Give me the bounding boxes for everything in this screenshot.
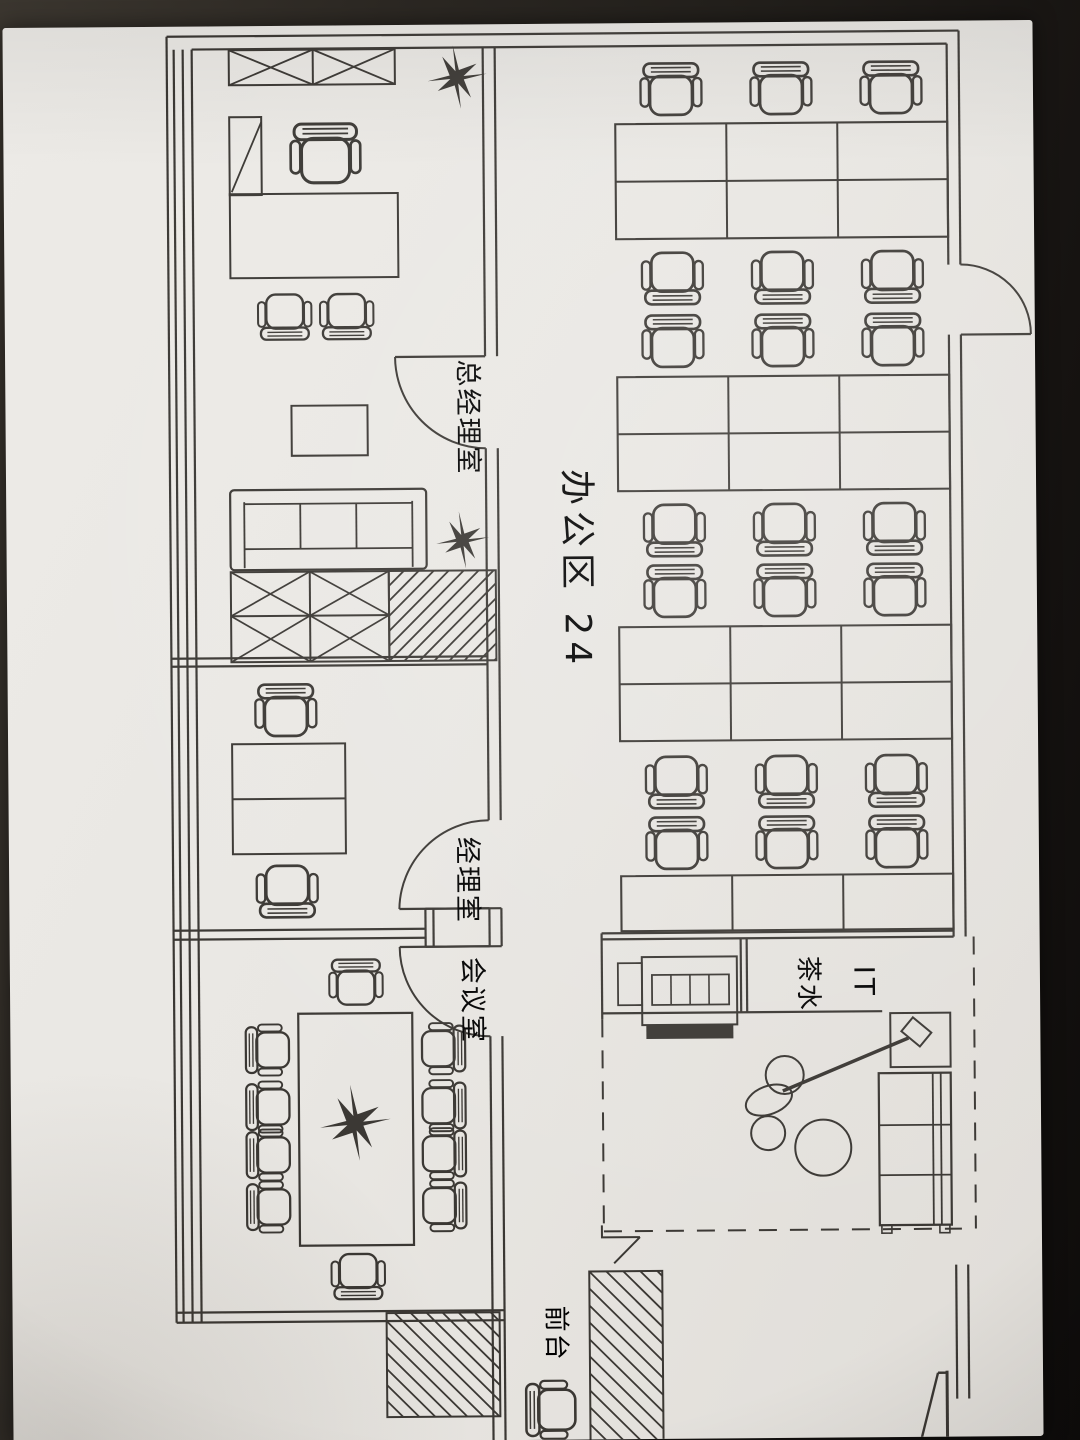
chair bbox=[320, 294, 374, 339]
chair-arm bbox=[750, 77, 759, 105]
wall-line bbox=[747, 938, 748, 1012]
desk-bank bbox=[621, 874, 953, 932]
sofa-seat-edge bbox=[245, 548, 413, 549]
chair-arm bbox=[540, 1381, 567, 1389]
chair-seat bbox=[874, 576, 916, 615]
chair-arm bbox=[695, 330, 704, 358]
label-meeting-room: 会议室 bbox=[456, 957, 488, 1044]
chair-arm bbox=[809, 831, 818, 859]
chair-arm bbox=[429, 1067, 453, 1074]
floor-plan-svg: 总经理室 经理室 会议室 办公区 24 茶水 IT 前台 bbox=[2, 20, 1043, 1440]
jamb-mark bbox=[921, 1373, 939, 1439]
chair bbox=[642, 315, 703, 367]
desk-divider bbox=[616, 179, 948, 182]
wall-line bbox=[174, 929, 426, 931]
column-meeting-hatch-line bbox=[395, 1312, 500, 1417]
chair-seat bbox=[655, 757, 697, 796]
column-gm-hatch-line bbox=[389, 570, 465, 646]
chair bbox=[646, 757, 707, 809]
chair-arm bbox=[805, 329, 814, 357]
chair-arm bbox=[804, 260, 813, 288]
executive-desk bbox=[230, 193, 399, 278]
chair-arm bbox=[258, 302, 266, 327]
chair-arm bbox=[756, 764, 765, 792]
wall-line bbox=[483, 47, 485, 356]
pantry-boundary-dashed bbox=[604, 1229, 962, 1232]
column-meeting-hatch-line bbox=[475, 1312, 500, 1337]
chair-arm bbox=[646, 765, 655, 793]
reception-wall-hatch-line bbox=[590, 1407, 624, 1440]
chair bbox=[754, 564, 815, 616]
chair-seat bbox=[266, 866, 308, 905]
chair-arm bbox=[916, 511, 925, 539]
sofa-arm bbox=[244, 502, 245, 568]
chair-seat bbox=[423, 1136, 456, 1171]
chair-arm bbox=[644, 513, 653, 541]
chair-seat bbox=[876, 828, 918, 867]
chair-arm bbox=[259, 1181, 283, 1188]
chair-seat bbox=[258, 1189, 291, 1224]
chair-seat bbox=[873, 503, 915, 542]
chair-seat bbox=[765, 756, 807, 795]
wall-line bbox=[602, 937, 954, 940]
wall-line bbox=[502, 1036, 505, 1440]
sofa bbox=[230, 489, 427, 571]
column-meeting-hatch-line bbox=[427, 1312, 501, 1386]
fridge-door-line bbox=[941, 1073, 942, 1225]
chair-arm bbox=[331, 1262, 339, 1287]
chair-seat bbox=[538, 1390, 575, 1430]
plan-drawing bbox=[167, 30, 1040, 1440]
wall-line bbox=[167, 31, 959, 37]
reception-wall-hatch-line bbox=[590, 1373, 659, 1440]
chair-arm bbox=[693, 78, 702, 106]
chair-seat bbox=[301, 138, 349, 183]
chair-arm bbox=[646, 832, 655, 860]
fridge-door-line bbox=[933, 1073, 934, 1225]
chair-seat bbox=[257, 1089, 290, 1124]
chair-seat bbox=[328, 294, 365, 328]
chair-arm bbox=[699, 832, 708, 860]
plant bbox=[320, 1084, 391, 1161]
chair bbox=[644, 565, 705, 617]
chair-seat bbox=[875, 755, 917, 794]
wall-line bbox=[602, 933, 603, 1019]
wall-line bbox=[171, 664, 487, 666]
chair bbox=[246, 1081, 290, 1132]
chair-seat bbox=[762, 327, 804, 366]
chair-arm bbox=[375, 972, 383, 997]
chair bbox=[756, 816, 817, 868]
chair-seat bbox=[652, 328, 694, 367]
round-table bbox=[795, 1119, 851, 1175]
chair bbox=[423, 1180, 467, 1231]
chair-arm bbox=[866, 831, 875, 859]
chair-arm bbox=[430, 1172, 454, 1179]
chair-arm bbox=[430, 1224, 454, 1231]
chair-seat bbox=[340, 1254, 377, 1288]
chair-seat bbox=[653, 505, 695, 544]
chair-seat bbox=[337, 970, 374, 1004]
chair-arm bbox=[806, 512, 815, 540]
chair bbox=[862, 251, 923, 303]
chair-arm bbox=[366, 301, 374, 326]
chair-arm bbox=[918, 763, 927, 791]
chair-arm bbox=[309, 874, 318, 902]
chair bbox=[526, 1381, 575, 1439]
chair-seat bbox=[266, 294, 303, 328]
chair-arm bbox=[696, 513, 705, 541]
label-tea-water: 茶水 bbox=[793, 956, 823, 1012]
chair-arm bbox=[260, 1225, 284, 1232]
chair-arm bbox=[258, 1024, 282, 1031]
chair-arm bbox=[429, 1080, 453, 1087]
chair bbox=[644, 505, 705, 557]
chair bbox=[258, 294, 312, 339]
chair-seat bbox=[871, 251, 913, 290]
chair-seat bbox=[763, 504, 805, 543]
chair bbox=[752, 314, 813, 366]
entry-door-arc bbox=[960, 264, 1031, 335]
chair-arm bbox=[914, 259, 923, 287]
chair-arm bbox=[291, 141, 301, 173]
chair-arm bbox=[697, 580, 706, 608]
chair-arm bbox=[860, 77, 869, 105]
column-meeting-hatch-line bbox=[387, 1336, 468, 1417]
chair-arm bbox=[862, 329, 871, 357]
chair bbox=[864, 563, 925, 615]
plan-labels: 总经理室 经理室 会议室 办公区 24 茶水 IT 前台 bbox=[448, 356, 884, 1362]
label-manager-office: 经理室 bbox=[451, 837, 483, 924]
chair bbox=[423, 1128, 467, 1179]
chair-arm bbox=[862, 260, 871, 288]
chair bbox=[752, 252, 813, 304]
copier-tray bbox=[618, 963, 642, 1005]
wall-line bbox=[961, 335, 966, 937]
plant bbox=[436, 511, 490, 569]
chair-arm bbox=[913, 76, 922, 104]
column-meeting-hatch-line bbox=[387, 1385, 419, 1417]
chair-arm bbox=[694, 261, 703, 289]
chair-arm bbox=[258, 1068, 282, 1075]
chair-seat bbox=[422, 1031, 455, 1066]
chair-arm bbox=[304, 302, 312, 327]
coffee-table bbox=[291, 405, 367, 456]
column-gm-hatch-line bbox=[449, 613, 496, 660]
wall-line bbox=[498, 448, 501, 820]
chair-arm bbox=[915, 328, 924, 356]
column-gm-hatch-line bbox=[389, 571, 404, 586]
chair-arm bbox=[308, 699, 317, 727]
chair bbox=[864, 503, 925, 555]
copier-base bbox=[646, 1024, 733, 1039]
wall-line bbox=[741, 938, 742, 1012]
chair-seat bbox=[870, 74, 912, 113]
wall-line bbox=[171, 656, 487, 658]
wall-line bbox=[495, 47, 497, 356]
chair-arm bbox=[919, 830, 928, 858]
chair-arm bbox=[640, 78, 649, 106]
desk-divider bbox=[618, 432, 950, 435]
reception-wall bbox=[589, 1271, 663, 1440]
pantry-boundary-dashed bbox=[974, 936, 976, 1228]
gm-door-leaf bbox=[395, 356, 485, 357]
chair-arm bbox=[917, 578, 926, 606]
label-it: IT bbox=[847, 966, 880, 1000]
jamb-mark bbox=[947, 1371, 948, 1439]
chair-arm bbox=[644, 580, 653, 608]
chair-arm bbox=[803, 77, 812, 105]
chair-arm bbox=[864, 512, 873, 540]
desk-return bbox=[229, 117, 262, 195]
chair bbox=[257, 866, 318, 918]
column-gm-hatch-line bbox=[389, 570, 480, 661]
wall-line bbox=[968, 1265, 969, 1399]
pantry-box bbox=[890, 1013, 950, 1067]
chair-arm bbox=[864, 579, 873, 607]
chair bbox=[290, 124, 360, 183]
chair-arm bbox=[430, 1180, 454, 1187]
chair bbox=[329, 959, 383, 1004]
chair bbox=[247, 1181, 291, 1232]
reception-wall-hatch-line bbox=[640, 1271, 662, 1293]
column-meeting-hatch-line bbox=[387, 1401, 403, 1417]
desk-return-diagonal bbox=[231, 122, 262, 192]
reception-wall-hatch-line bbox=[606, 1271, 662, 1327]
chair bbox=[860, 61, 921, 113]
chair bbox=[246, 1024, 290, 1075]
wall-line bbox=[486, 448, 489, 820]
chair-arm bbox=[807, 579, 816, 607]
column-meeting-hatch-line bbox=[387, 1353, 452, 1418]
chair-arm bbox=[698, 765, 707, 793]
chair-arm bbox=[642, 330, 651, 358]
manager-desk-divider bbox=[233, 798, 346, 799]
label-gm-office: 总经理室 bbox=[452, 359, 484, 475]
mop-head bbox=[742, 1079, 797, 1122]
chair-arm bbox=[756, 831, 765, 859]
column-meeting-hatch-line bbox=[387, 1320, 484, 1417]
chair-seat bbox=[650, 76, 692, 115]
chair-seat bbox=[654, 578, 696, 617]
column-gm-hatch-line bbox=[389, 571, 449, 631]
chair bbox=[246, 1129, 290, 1180]
chair-seat bbox=[761, 252, 803, 291]
chair-arm bbox=[329, 973, 337, 998]
label-open-office: 办公区 24 bbox=[555, 469, 598, 671]
chair bbox=[422, 1080, 466, 1131]
photo-background: 总经理室 经理室 会议室 办公区 24 茶水 IT 前台 bbox=[0, 0, 1080, 1440]
chair-seat bbox=[760, 75, 802, 114]
chair-arm bbox=[752, 329, 761, 357]
chair-arm bbox=[259, 1173, 283, 1180]
chair-arm bbox=[866, 764, 875, 792]
pantry-boundary-dashed bbox=[602, 1019, 604, 1231]
chair-seat bbox=[256, 1032, 289, 1067]
floor-plan-paper: 总经理室 经理室 会议室 办公区 24 茶水 IT 前台 bbox=[2, 20, 1043, 1440]
entry-door-leaf bbox=[961, 334, 1031, 335]
chair-arm bbox=[754, 579, 763, 607]
chair-arm bbox=[257, 874, 266, 902]
chair-seat bbox=[764, 577, 806, 616]
chair bbox=[642, 253, 703, 305]
chair-arm bbox=[377, 1261, 385, 1286]
chair bbox=[756, 756, 817, 808]
chair-seat bbox=[423, 1188, 456, 1223]
chair-arm bbox=[540, 1431, 567, 1439]
plant bbox=[427, 45, 486, 109]
stool bbox=[751, 1116, 785, 1150]
wall-line bbox=[183, 50, 193, 1323]
chair-arm bbox=[642, 261, 651, 289]
wall-line bbox=[192, 50, 202, 1323]
chair bbox=[866, 815, 927, 867]
label-reception: 前台 bbox=[541, 1306, 571, 1362]
reception-wall-hatch-line bbox=[623, 1271, 662, 1310]
chair bbox=[862, 313, 923, 365]
chair-arm bbox=[752, 260, 761, 288]
chair-arm bbox=[351, 140, 361, 172]
column-gm-hatch-line bbox=[389, 571, 419, 601]
chair-seat bbox=[265, 697, 307, 736]
column-gm-hatch-line bbox=[404, 570, 495, 661]
chair-seat bbox=[422, 1088, 455, 1123]
chair-arm bbox=[754, 512, 763, 540]
chair-seat bbox=[872, 326, 914, 365]
chair-seat bbox=[651, 253, 693, 292]
chair-seat bbox=[656, 830, 698, 869]
chair-arm bbox=[255, 699, 264, 727]
chair bbox=[255, 684, 316, 736]
chair-arm bbox=[808, 764, 817, 792]
sofa-arm bbox=[412, 501, 413, 567]
chair bbox=[866, 755, 927, 807]
meeting-door-leaf bbox=[400, 946, 490, 947]
chair-arm bbox=[258, 1081, 282, 1088]
chair-seat bbox=[257, 1137, 290, 1172]
desk-divider bbox=[620, 682, 952, 685]
chair-arm bbox=[320, 302, 328, 327]
mop-grip bbox=[901, 1017, 931, 1046]
chair bbox=[754, 504, 815, 556]
chair-seat bbox=[766, 829, 808, 868]
chair bbox=[646, 817, 707, 869]
wall-line bbox=[177, 1320, 505, 1323]
chair bbox=[331, 1254, 385, 1299]
chair bbox=[640, 63, 701, 115]
column-gm-hatch-line bbox=[419, 583, 497, 661]
wall-line bbox=[956, 1265, 957, 1399]
chair bbox=[750, 62, 811, 114]
sofa-back bbox=[244, 503, 412, 504]
reception-wall-hatch-line bbox=[590, 1424, 607, 1440]
wall-line bbox=[174, 938, 426, 940]
wall-line bbox=[959, 31, 961, 265]
